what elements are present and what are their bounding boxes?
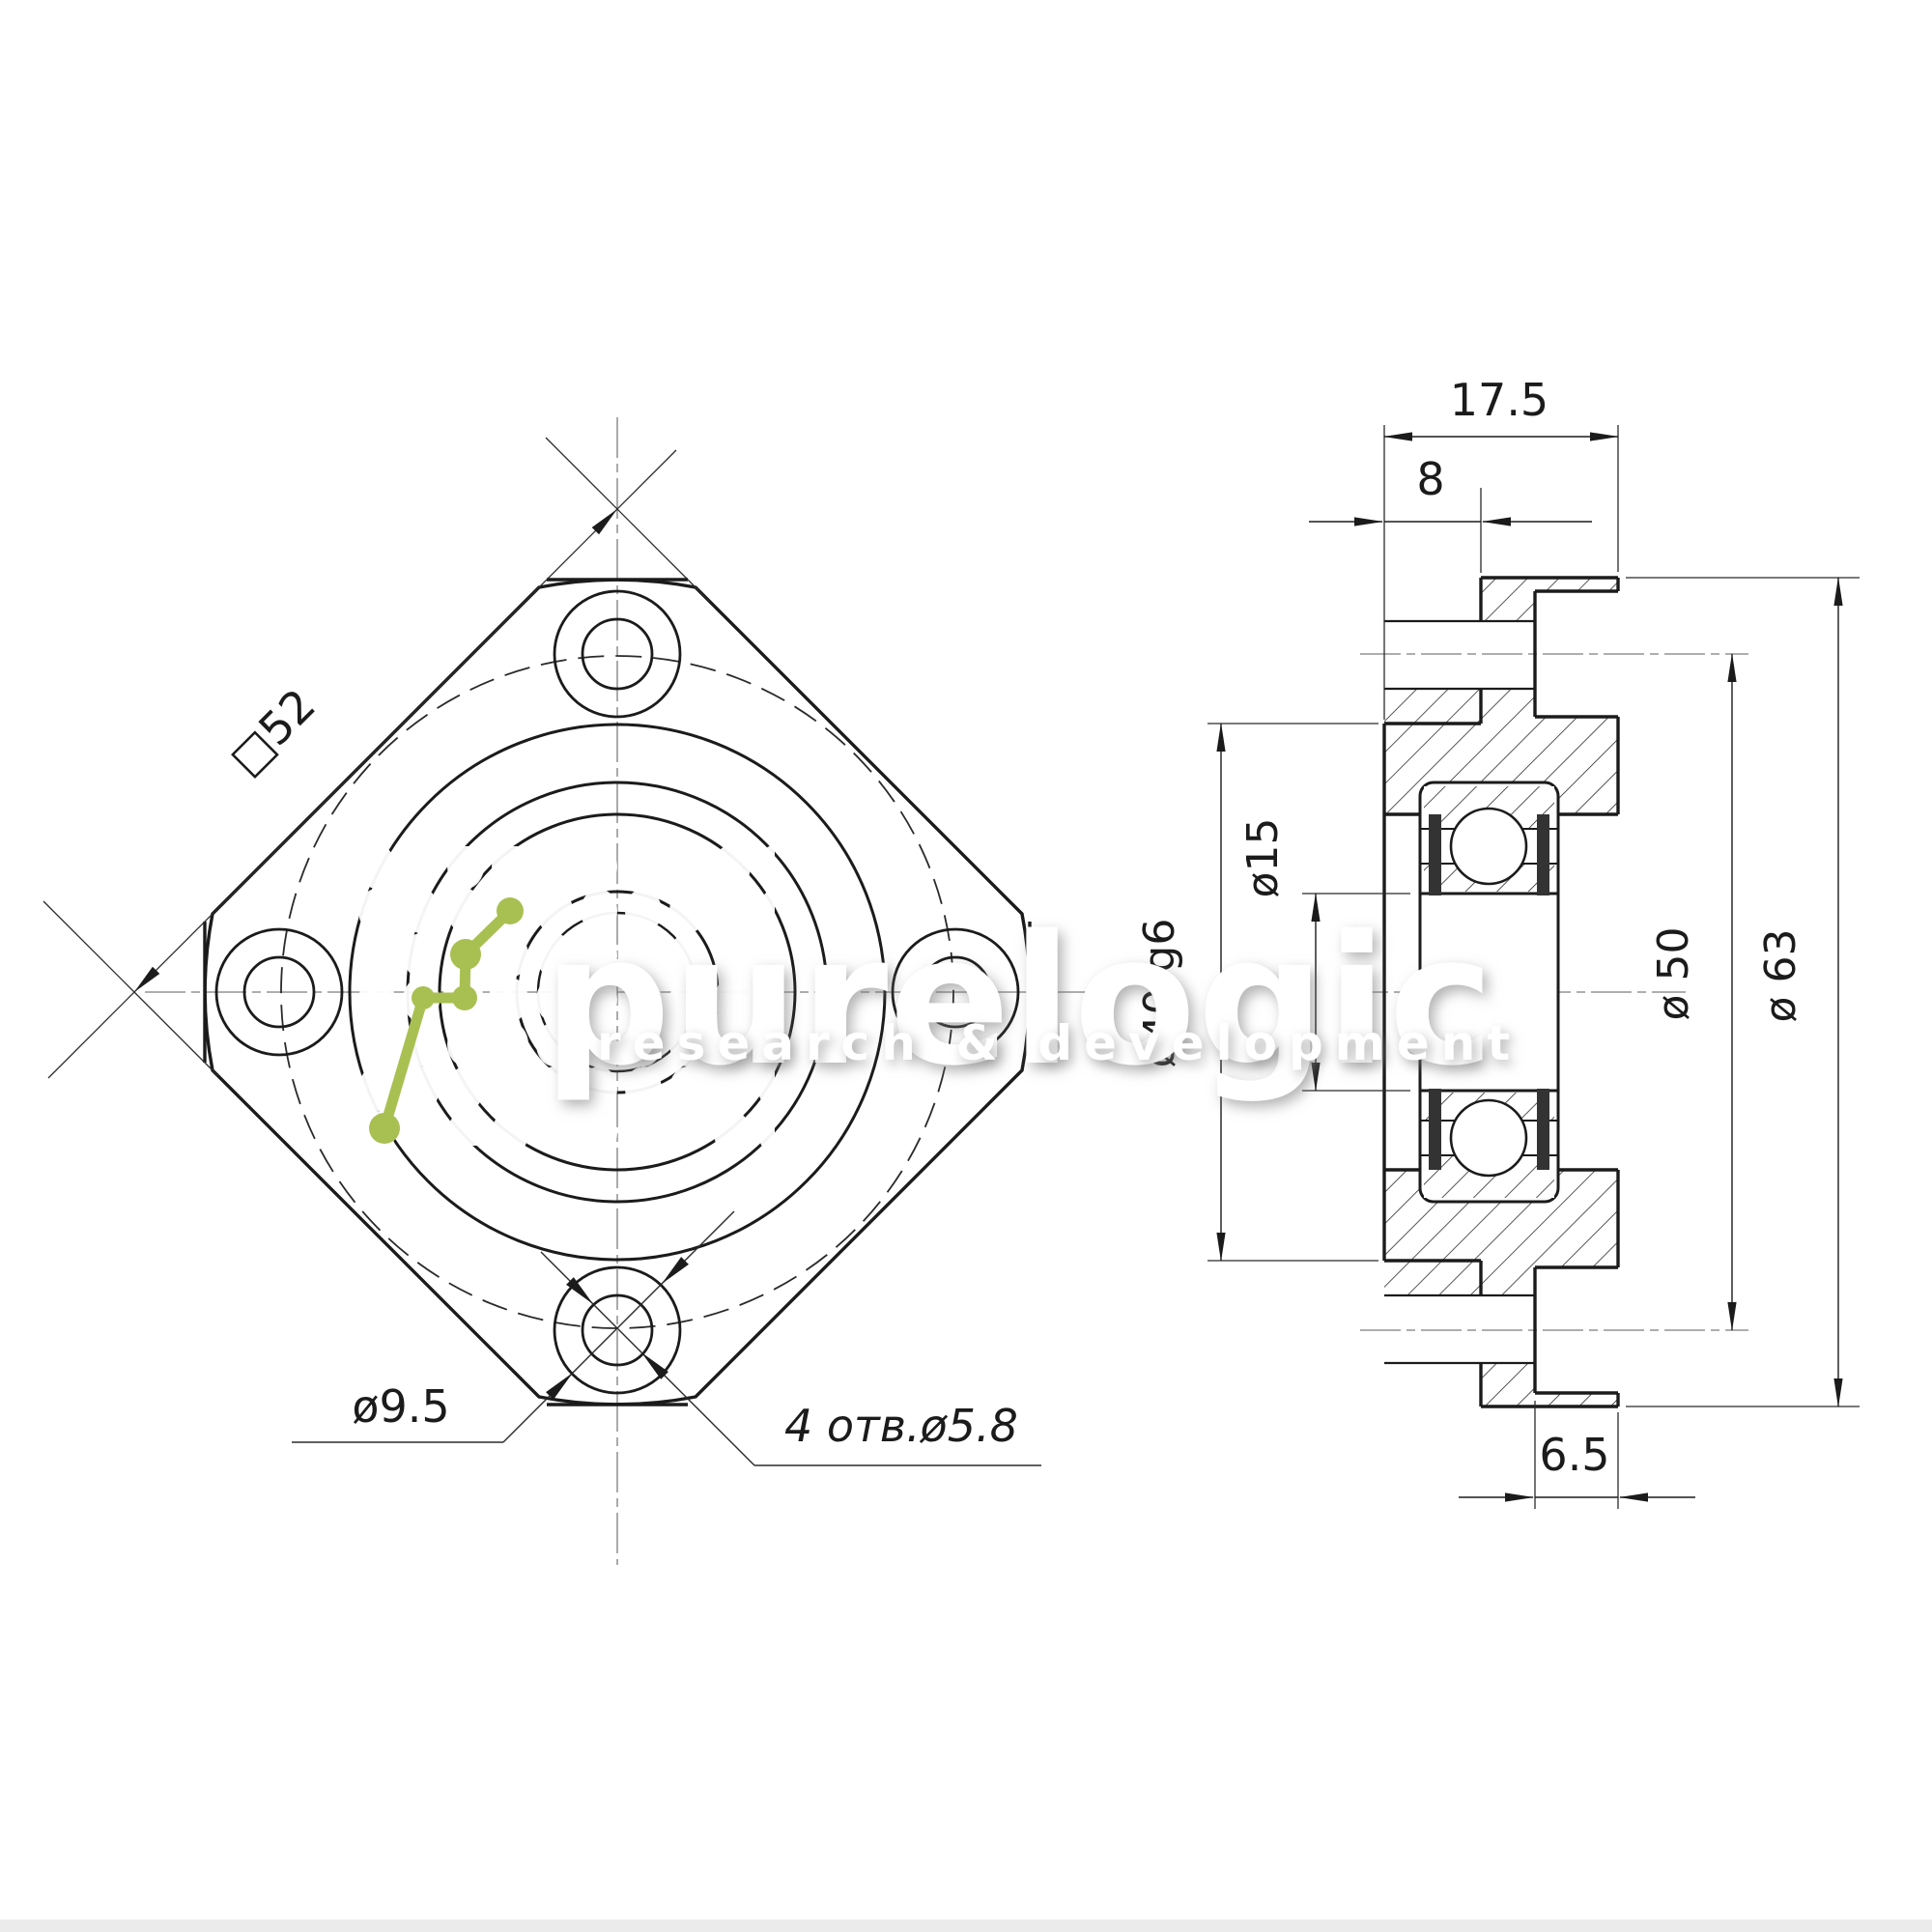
square-side-label: □52 xyxy=(219,679,326,785)
bearing-ball-bottom xyxy=(1451,1100,1526,1176)
dim-bolt-circle: ø 50 xyxy=(1649,654,1732,1330)
dim-counterbore-depth: 6.5 xyxy=(1459,1401,1695,1509)
holes-label: 4 отв.ø5.8 xyxy=(784,1400,1018,1452)
total-width-label: 17.5 xyxy=(1450,374,1548,426)
spigot-length-label: 8 xyxy=(1416,453,1444,505)
dim-total-width: 17.5 xyxy=(1384,374,1618,720)
holes-leader: 4 отв.ø5.8 xyxy=(541,1252,1041,1465)
counterbore-depth-label: 6.5 xyxy=(1539,1429,1609,1481)
watermark-brand: purelogic xyxy=(543,896,1495,1105)
technical-drawing-page: □52 ø9.5 4 отв.ø5.8 xyxy=(0,0,1932,1932)
outer-dia-label: ø 63 xyxy=(1756,929,1805,1023)
bearing-ball-top xyxy=(1451,809,1526,884)
dim-spigot-length: 8 xyxy=(1309,453,1592,573)
counterbore-label: ø9.5 xyxy=(352,1380,449,1433)
watermark-subtitle: research & development xyxy=(597,1015,1521,1071)
bolt-circle-label: ø 50 xyxy=(1649,927,1698,1021)
bottom-edge-artifact xyxy=(0,1919,1932,1932)
bore-label: ø15 xyxy=(1238,818,1288,898)
bearing-mount-drawing: □52 ø9.5 4 отв.ø5.8 xyxy=(0,0,1932,1932)
counterbore-leader: ø9.5 xyxy=(292,1211,734,1442)
watermark: purelogic research & development xyxy=(359,846,1521,1146)
